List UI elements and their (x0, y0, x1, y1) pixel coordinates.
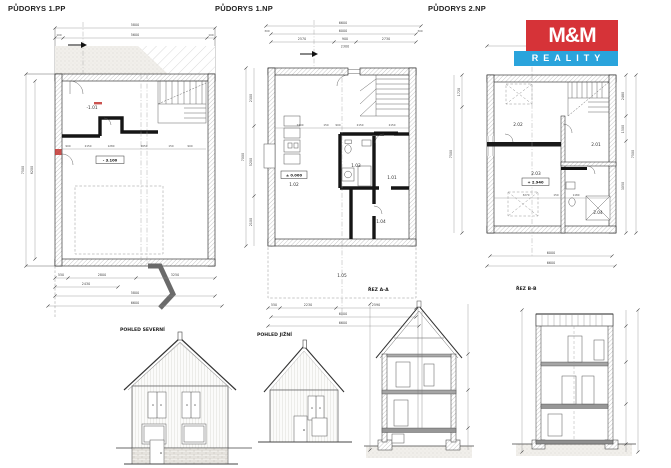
lower-window (312, 418, 327, 436)
section-label: ŘEZ B-B (516, 285, 537, 292)
dim-label: 2150 (389, 123, 396, 127)
chimney (178, 332, 182, 340)
dim-label: 5800 (131, 23, 139, 27)
dim-label: 300 (264, 29, 269, 33)
dim-label: 2570 (298, 37, 306, 41)
room-label: 1.02 (289, 182, 299, 188)
logo-reality-text: REALITY (527, 54, 606, 63)
door-handle (303, 429, 305, 431)
room-label: 2.02 (513, 122, 523, 128)
dim-label: 6600 (131, 301, 139, 305)
dim-label: 7500 (21, 166, 25, 174)
entry-door (150, 440, 164, 464)
dim-label: 100 (208, 33, 213, 37)
dim-label: 150 (323, 123, 328, 127)
dim-label: 1280 (108, 144, 115, 148)
dim-label: 2300 (249, 94, 253, 102)
dim-label: 6600 (339, 321, 347, 325)
section-bb-drawing: ŘEZ B-B (510, 284, 668, 468)
dim-label: 6000 (547, 251, 555, 255)
pp-walls (55, 74, 215, 266)
dim-label: 2430 (82, 282, 90, 286)
room-label: 1.05 (337, 273, 347, 279)
dim-label: 2730 (382, 37, 390, 41)
gable (270, 351, 338, 390)
logo-red-box: M&M (526, 20, 618, 51)
section-label: ŘEZ A-A (368, 286, 389, 293)
pp-bottom-dims: 550 2800 3250 2430 5800 6600 (46, 273, 223, 308)
dim-label: 6600 (547, 261, 555, 265)
section-roof (376, 301, 462, 358)
dim-label: 300 (417, 29, 422, 33)
plan-1pp-title: PŮDORYS 1.PP (8, 4, 66, 13)
dim-label: 7000 (241, 153, 245, 161)
dim-label: 100 (56, 33, 61, 37)
dim-label: 2150 (357, 123, 364, 127)
interior-openings (392, 307, 434, 443)
section-aa-drawing: ŘEZ A-A (364, 284, 476, 468)
level-label: - 3.100 (103, 159, 118, 163)
logo-blue-bar: REALITY (514, 51, 618, 66)
pp-exterior-stair (148, 266, 173, 308)
section-cut-marker (300, 20, 318, 73)
dim-label: 2300 (341, 45, 349, 49)
dim-label: 2650 (141, 144, 148, 148)
view-label: POHLED SEVERNÍ (120, 325, 165, 333)
np2-right-dims: 2480 1500 3050 7500 (621, 73, 638, 234)
dim-label: 7500 (449, 150, 453, 158)
dim-label: 900 (187, 144, 192, 148)
view-label: POHLED JIŽNÍ (257, 330, 292, 338)
room-label: 2.03 (531, 171, 541, 177)
room-label: 2.04 (593, 210, 603, 216)
dim-label: 150 (168, 144, 173, 148)
dim-label: 7500 (631, 150, 635, 158)
logo-mm-text: M&M (548, 25, 595, 46)
dim-label: 900 (335, 123, 340, 127)
chimney (303, 340, 307, 348)
red-mark (55, 149, 62, 155)
plan-1np-title: PŮDORYS 1.NP (215, 4, 273, 13)
dim-label: 550 (271, 303, 277, 307)
plan-1pp-drawing: 5800 100 5600 100 (8, 16, 233, 328)
dim-label: 1720 (457, 88, 461, 96)
dim-label: 5200 (249, 158, 253, 166)
dim-label: 150 (553, 193, 558, 197)
np2-left-dims: 1720 7500 (449, 73, 464, 234)
level-label: + 2.940 (527, 181, 543, 185)
dim-label: 1500 (621, 125, 625, 133)
dim-label: 900 (65, 144, 70, 148)
dim-label: 900 (342, 37, 348, 41)
roof-structure (536, 314, 613, 326)
plan-2np-title: PŮDORYS 2.NP (428, 4, 486, 13)
level-label: ± 0.000 (286, 174, 302, 178)
room-label: 2.01 (591, 142, 601, 148)
room-label: 1.03 (351, 163, 361, 169)
dim-label: 5800 (131, 291, 139, 295)
elevation-south-drawing: POHLED JIŽNÍ (254, 330, 358, 464)
dim-label: 1180 (573, 193, 580, 197)
dim-label: 2100 (249, 218, 253, 226)
np2-bottom-dims: 6000 6600 (485, 251, 616, 268)
dim-label: 3270 (523, 193, 530, 197)
dim-label: 2150 (85, 144, 92, 148)
room-label: 1.01 (387, 175, 397, 181)
dim-label: 6600 (339, 21, 347, 25)
room-label: -1.01 (86, 105, 97, 111)
basement-band (132, 448, 228, 464)
dim-label: 6000 (339, 312, 347, 316)
gable (132, 343, 228, 386)
elevation-north-drawing: POHLED SEVERNÍ (116, 324, 252, 468)
door (294, 416, 307, 442)
dim-label: 2400 (297, 123, 304, 127)
room-label: 1.04 (376, 219, 386, 225)
interior-openings (548, 326, 604, 440)
dim-label: 2480 (621, 92, 625, 100)
dim-label: 550 (58, 273, 64, 277)
dim-label: 5600 (131, 33, 139, 37)
dim-label: 3050 (621, 182, 625, 190)
dim-label: 2800 (98, 273, 106, 277)
dim-label: 3250 (171, 273, 179, 277)
mm-reality-logo: M&M REALITY (514, 20, 618, 66)
dim-label: 6200 (30, 166, 34, 174)
dim-label: 6000 (339, 29, 347, 33)
drawing-sheet: PŮDORYS 1.PP PŮDORYS 1.NP PŮDORYS 2.NP M… (0, 0, 671, 468)
np-left-dims: 7000 2300 5200 2100 (241, 66, 256, 247)
np-top-dims: 6600 300 6000 300 2570 900 2730 2300 (264, 21, 422, 49)
dim-label: 2230 (304, 303, 312, 307)
floor-slabs (382, 354, 456, 433)
red-mark (94, 102, 102, 104)
door-handle (160, 452, 162, 454)
pp-left-dims: 7500 6200 (21, 72, 55, 267)
